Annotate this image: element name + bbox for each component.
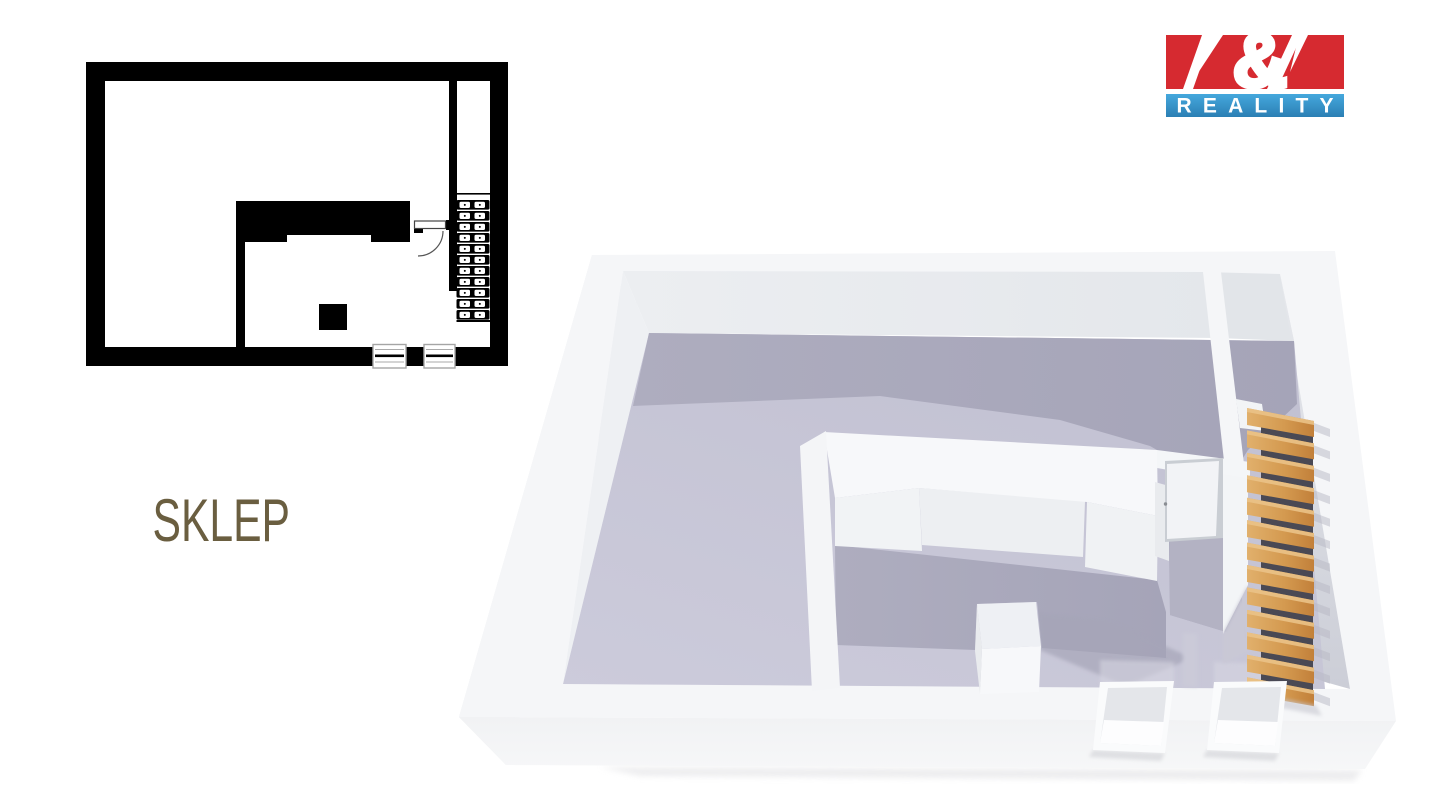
svg-text:SKLEP: SKLEP — [153, 487, 291, 554]
